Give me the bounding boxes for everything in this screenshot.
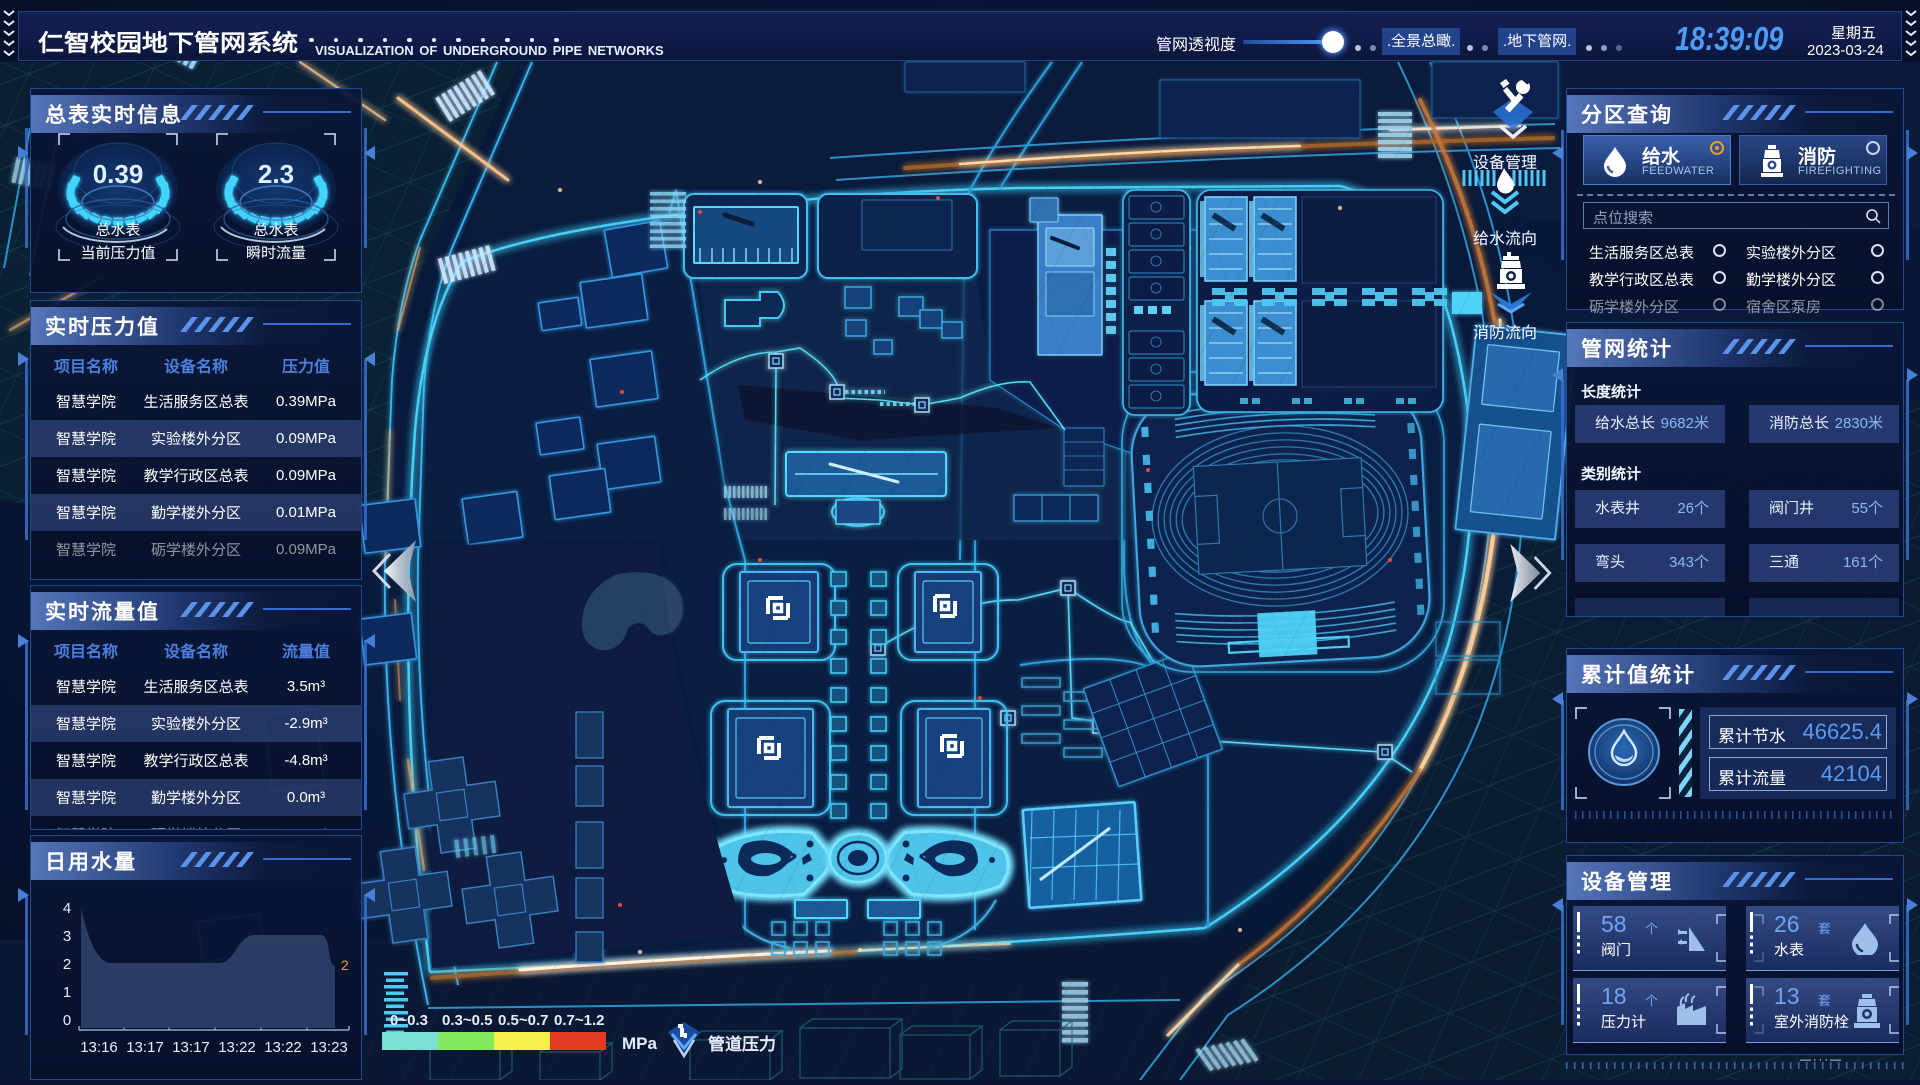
svg-text:13:17: 13:17 [126, 1039, 164, 1056]
svg-text:4: 4 [63, 900, 71, 917]
svg-text:1: 1 [63, 984, 71, 1001]
svg-text:13:22: 13:22 [264, 1039, 302, 1056]
svg-text:2: 2 [341, 957, 349, 973]
svg-text:13:17: 13:17 [172, 1039, 210, 1056]
svg-text:13:22: 13:22 [218, 1039, 256, 1056]
svg-text:13:16: 13:16 [80, 1039, 118, 1056]
svg-text:2: 2 [63, 956, 71, 973]
svg-text:0: 0 [63, 1012, 71, 1029]
svg-text:13:23: 13:23 [310, 1039, 348, 1056]
svg-text:3: 3 [63, 928, 71, 945]
